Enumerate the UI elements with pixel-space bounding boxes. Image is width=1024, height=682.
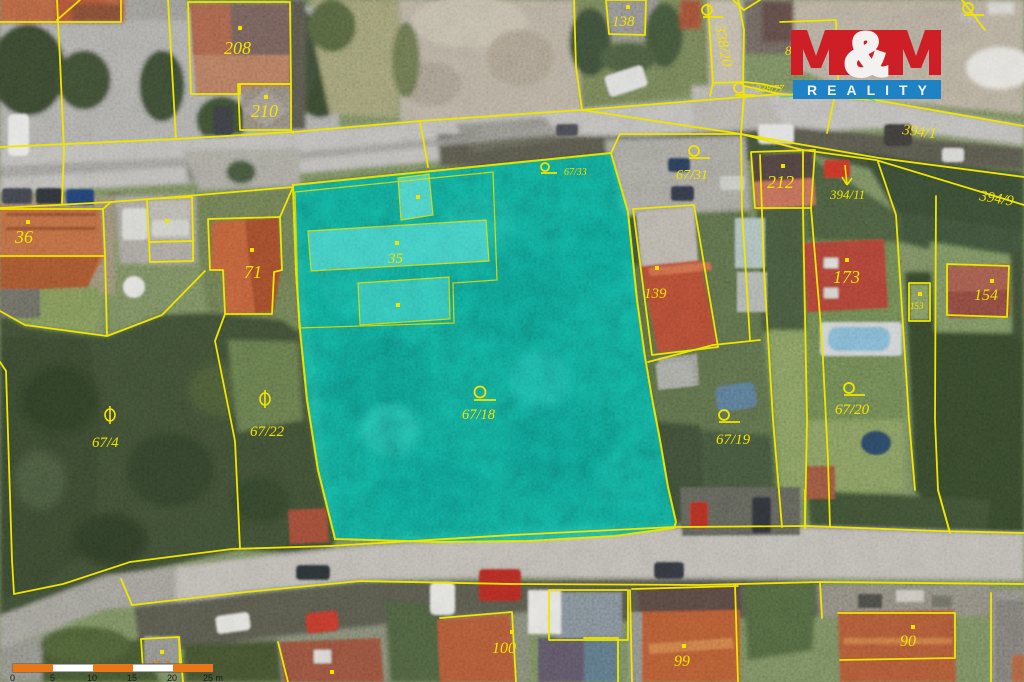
- svg-text:100: 100: [492, 640, 516, 657]
- svg-text:8: 8: [785, 43, 792, 58]
- svg-text:99: 99: [674, 653, 690, 670]
- svg-text:36: 36: [14, 227, 33, 247]
- svg-text:REALITY: REALITY: [807, 82, 937, 98]
- svg-text:67/4: 67/4: [92, 435, 119, 451]
- svg-text:67/19: 67/19: [716, 432, 751, 448]
- svg-text:208: 208: [224, 38, 251, 58]
- svg-text:67/31: 67/31: [676, 168, 708, 183]
- svg-text:212: 212: [767, 172, 794, 192]
- svg-text:67/18: 67/18: [462, 407, 496, 423]
- svg-text:35: 35: [387, 251, 404, 267]
- svg-text:67/20: 67/20: [835, 402, 870, 418]
- svg-text:338/77: 338/77: [755, 84, 785, 95]
- svg-text:153: 153: [910, 301, 924, 311]
- svg-text:139: 139: [644, 286, 667, 302]
- svg-text:20: 20: [167, 673, 177, 682]
- svg-text:5: 5: [50, 673, 55, 682]
- svg-text:67/22: 67/22: [250, 424, 285, 440]
- svg-text:10: 10: [87, 673, 97, 682]
- svg-text:394/11: 394/11: [829, 187, 865, 202]
- svg-text:&: &: [844, 21, 887, 88]
- svg-text:0: 0: [10, 673, 15, 682]
- svg-text:15: 15: [127, 673, 137, 682]
- svg-text:67/33: 67/33: [564, 167, 587, 178]
- svg-text:25 m: 25 m: [203, 673, 223, 682]
- svg-text:71: 71: [244, 262, 262, 282]
- svg-text:210: 210: [251, 101, 278, 121]
- svg-text:138: 138: [612, 14, 635, 30]
- svg-text:173: 173: [833, 267, 860, 287]
- svg-text:90: 90: [900, 633, 916, 650]
- svg-text:154: 154: [974, 287, 998, 304]
